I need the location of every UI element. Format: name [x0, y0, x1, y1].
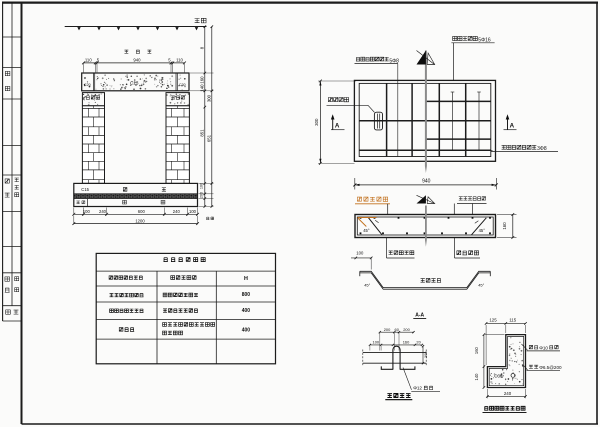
svg-text:851: 851	[200, 129, 205, 137]
svg-text:800: 800	[242, 292, 251, 298]
svg-text:160: 160	[403, 340, 410, 345]
svg-text:110: 110	[85, 57, 92, 62]
svg-text:240: 240	[99, 209, 107, 214]
svg-text:240: 240	[173, 209, 181, 214]
svg-text:100: 100	[199, 183, 203, 189]
svg-text:100: 100	[189, 209, 197, 214]
svg-text:115: 115	[509, 318, 517, 323]
svg-text:140: 140	[200, 84, 205, 92]
svg-text:200: 200	[403, 327, 410, 332]
svg-text:110: 110	[176, 57, 183, 62]
svg-text:651: 651	[207, 134, 212, 142]
svg-text:100: 100	[356, 250, 364, 255]
svg-text:C30: C30	[494, 373, 503, 378]
svg-text:100: 100	[83, 209, 91, 214]
svg-text:C15: C15	[81, 187, 89, 192]
svg-text:400: 400	[242, 308, 251, 314]
svg-text:600: 600	[138, 209, 146, 214]
svg-text:160: 160	[200, 76, 205, 84]
svg-text:C30: C30	[179, 83, 186, 87]
svg-text:940: 940	[133, 57, 141, 62]
svg-text:C25: C25	[130, 81, 139, 86]
svg-text:45°: 45°	[478, 283, 484, 288]
svg-text:A-A: A-A	[415, 313, 424, 319]
svg-text:Φ10: Φ10	[539, 346, 548, 351]
svg-text:300: 300	[314, 118, 319, 126]
svg-text:200: 200	[384, 327, 391, 332]
svg-text:100: 100	[423, 351, 428, 358]
svg-text:Φ12: Φ12	[413, 386, 422, 391]
svg-text:Φ6.5@200: Φ6.5@200	[539, 365, 562, 370]
svg-text:300: 300	[207, 94, 212, 102]
svg-text:100: 100	[373, 340, 380, 345]
svg-text:160: 160	[502, 222, 507, 230]
svg-text:A: A	[335, 122, 340, 129]
svg-text:45°: 45°	[364, 283, 370, 288]
svg-text:200: 200	[199, 192, 203, 198]
svg-text:125: 125	[489, 318, 497, 323]
svg-text:C20: C20	[84, 83, 91, 87]
svg-text:45°: 45°	[479, 228, 486, 233]
svg-text:240: 240	[504, 391, 512, 396]
svg-text:140: 140	[474, 373, 479, 381]
svg-text:45°: 45°	[363, 228, 370, 233]
svg-text:940: 940	[422, 179, 431, 185]
svg-text:A: A	[510, 122, 515, 129]
svg-text:400: 400	[242, 328, 251, 334]
svg-text:1200: 1200	[135, 219, 145, 224]
svg-text:160: 160	[474, 346, 479, 354]
svg-text:H: H	[244, 276, 248, 282]
